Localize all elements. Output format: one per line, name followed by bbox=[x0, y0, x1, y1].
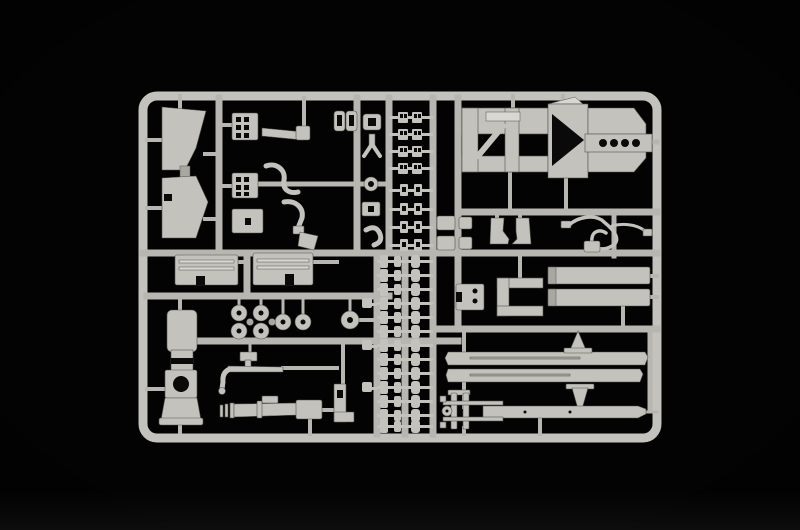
photo-background bbox=[0, 0, 800, 530]
vignette bbox=[0, 0, 800, 530]
floor-glow bbox=[0, 492, 800, 530]
sprue-photo bbox=[0, 0, 800, 530]
